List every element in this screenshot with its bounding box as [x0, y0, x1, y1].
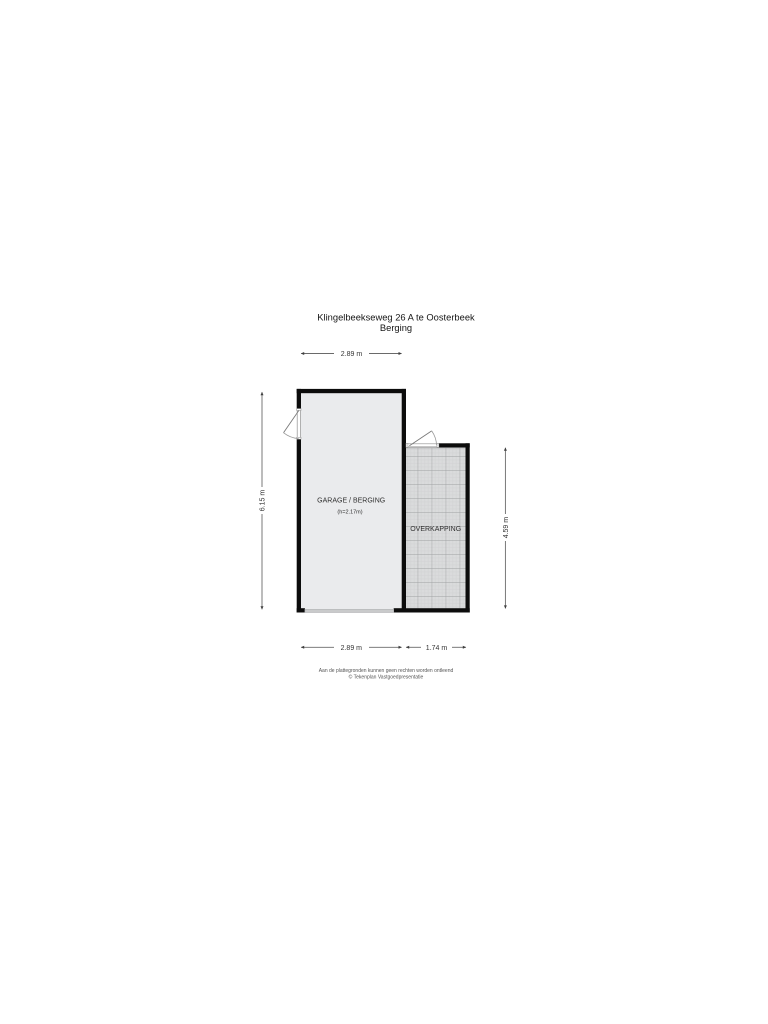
svg-text:4.59 m: 4.59 m — [503, 517, 510, 539]
svg-text:Berging: Berging — [380, 323, 412, 333]
svg-text:(h=2.17m): (h=2.17m) — [337, 510, 362, 516]
svg-text:1.74 m: 1.74 m — [426, 645, 448, 652]
svg-text:OVERKAPPING: OVERKAPPING — [410, 526, 461, 533]
svg-text:GARAGE / BERGING: GARAGE / BERGING — [317, 498, 385, 505]
svg-text:© Tekenplan Vastgoedpresentati: © Tekenplan Vastgoedpresentatie — [349, 674, 424, 681]
svg-text:6.15 m: 6.15 m — [260, 490, 267, 512]
svg-text:2.89 m: 2.89 m — [341, 645, 363, 652]
svg-text:2.89 m: 2.89 m — [341, 351, 363, 358]
svg-text:Klingelbeekseweg 26 A te Ooste: Klingelbeekseweg 26 A te Oosterbeek — [317, 312, 475, 322]
svg-text:Aan de plattegronden kunnen ge: Aan de plattegronden kunnen geen rechten… — [319, 668, 454, 674]
